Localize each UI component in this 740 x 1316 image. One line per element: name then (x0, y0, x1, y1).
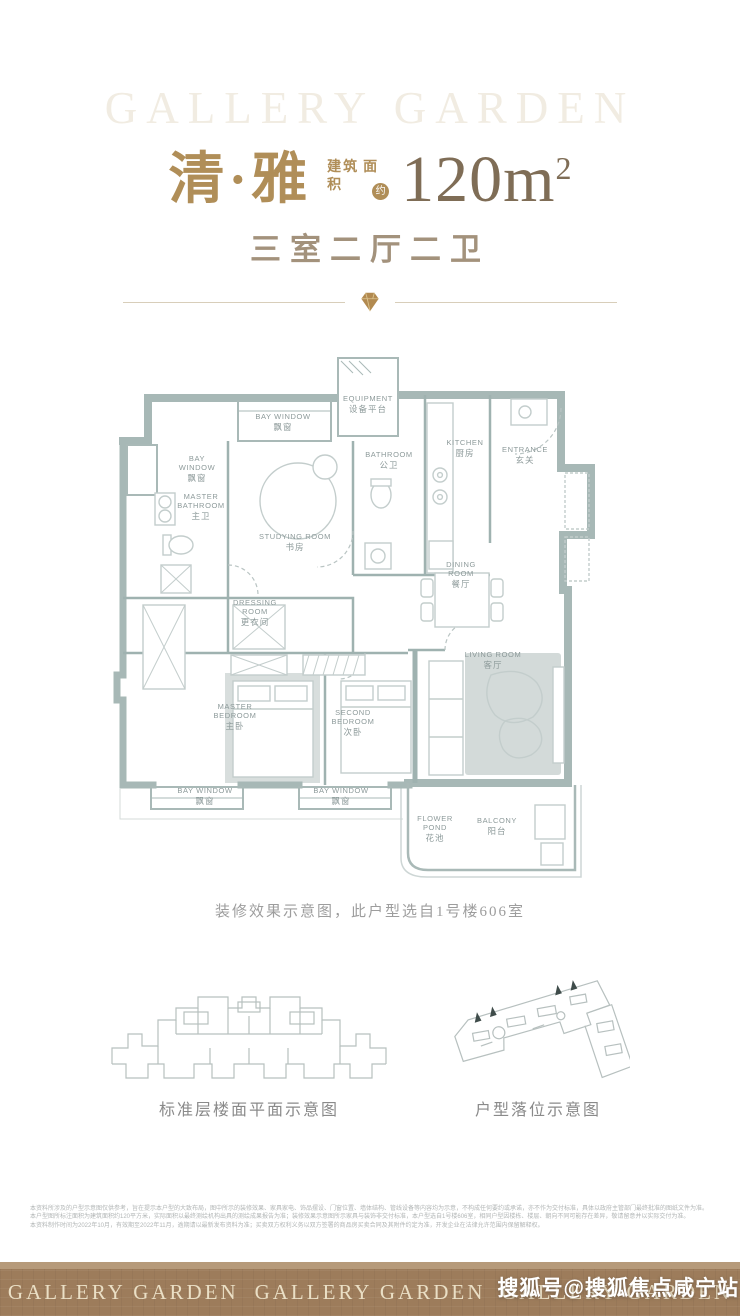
divider-line-left (123, 302, 345, 303)
unit-location-diagram (446, 976, 630, 1090)
disclaimer-line: 本资料所涉及的户型示意图仅供参考，旨在提示本户型的大致布局，图中所示的装修效果、… (30, 1205, 712, 1213)
room-label: BAY WINDOW飘窗 (177, 786, 233, 806)
layout-subtitle: 三室二厅二卫 (0, 224, 740, 269)
floorplan-caption: 装修效果示意图，此户型选自1号楼606室 (0, 900, 740, 921)
standard-floor-caption: 标准层楼面平面示意图 (100, 1096, 398, 1120)
room-label: FLOWERPOND花池 (417, 814, 453, 843)
area-value: 120m2 (401, 147, 571, 213)
area-superscript: 2 (556, 150, 572, 186)
divider-line-right (395, 302, 617, 303)
unit-location-caption: 户型落位示意图 (446, 1096, 630, 1120)
area-prefix: 建筑 面积 约 (327, 158, 385, 202)
sohu-watermark: 搜狐号@搜狐焦点咸宁站 (498, 1272, 739, 1302)
disclaimer-text: 本资料所涉及的户型示意图仅供参考，旨在提示本户型的大致布局，图中所示的装修效果、… (30, 1205, 712, 1230)
disclaimer-line: 本资料制作时间为2022年10月，有效期至2022年11月，逾期请以最新发布资料… (30, 1222, 712, 1230)
room-label: BALCONY阳台 (477, 816, 517, 836)
room-label: BATHROOM公卫 (365, 450, 413, 470)
footer-brand: GALLERY GARDEN (255, 1280, 486, 1305)
sideboard (553, 667, 564, 763)
title-row: 清·雅 建筑 面积 约 120m2 (0, 138, 740, 222)
master-toilet (169, 536, 193, 554)
study-chair (313, 455, 337, 479)
room-label: STUDYING ROOM书房 (259, 532, 331, 552)
diamond-icon (357, 291, 383, 313)
sofa (429, 661, 463, 775)
poster-page: GALLERY GARDEN 清·雅 建筑 面积 约 120m2 三室二厅二卫 (0, 0, 740, 1316)
unit-title: 清·雅 (168, 152, 311, 208)
standard-floor-diagram (100, 988, 398, 1088)
room-label: BAY WINDOW飘窗 (313, 786, 369, 806)
balcony-cabinet (535, 805, 565, 839)
room-label: EQUIPMENT设备平台 (343, 394, 393, 414)
brand-watermark-text: GALLERY GARDEN (0, 82, 740, 134)
divider (0, 290, 740, 314)
area-prefix-line1: 建筑 (327, 160, 359, 175)
entry-cabinet (565, 473, 589, 529)
approx-badge: 约 (372, 183, 389, 200)
room-label: BAYWINDOW飘窗 (179, 454, 216, 483)
floorplan-svg: EQUIPMENT设备平台BAY WINDOW飘窗BATHROOM公卫KITCH… (113, 353, 608, 881)
room-label: MASTERBATHROOM主卫 (177, 492, 225, 521)
footer-brand: GALLERY GARDEN (8, 1280, 239, 1305)
disclaimer-line: 本户型图所标注面积为建筑面积约120平方米，实际面积以最终测绘机构出具的测绘成果… (30, 1213, 712, 1221)
room-label: ENTRANCE玄关 (502, 445, 548, 465)
unit-markers (470, 980, 580, 1023)
